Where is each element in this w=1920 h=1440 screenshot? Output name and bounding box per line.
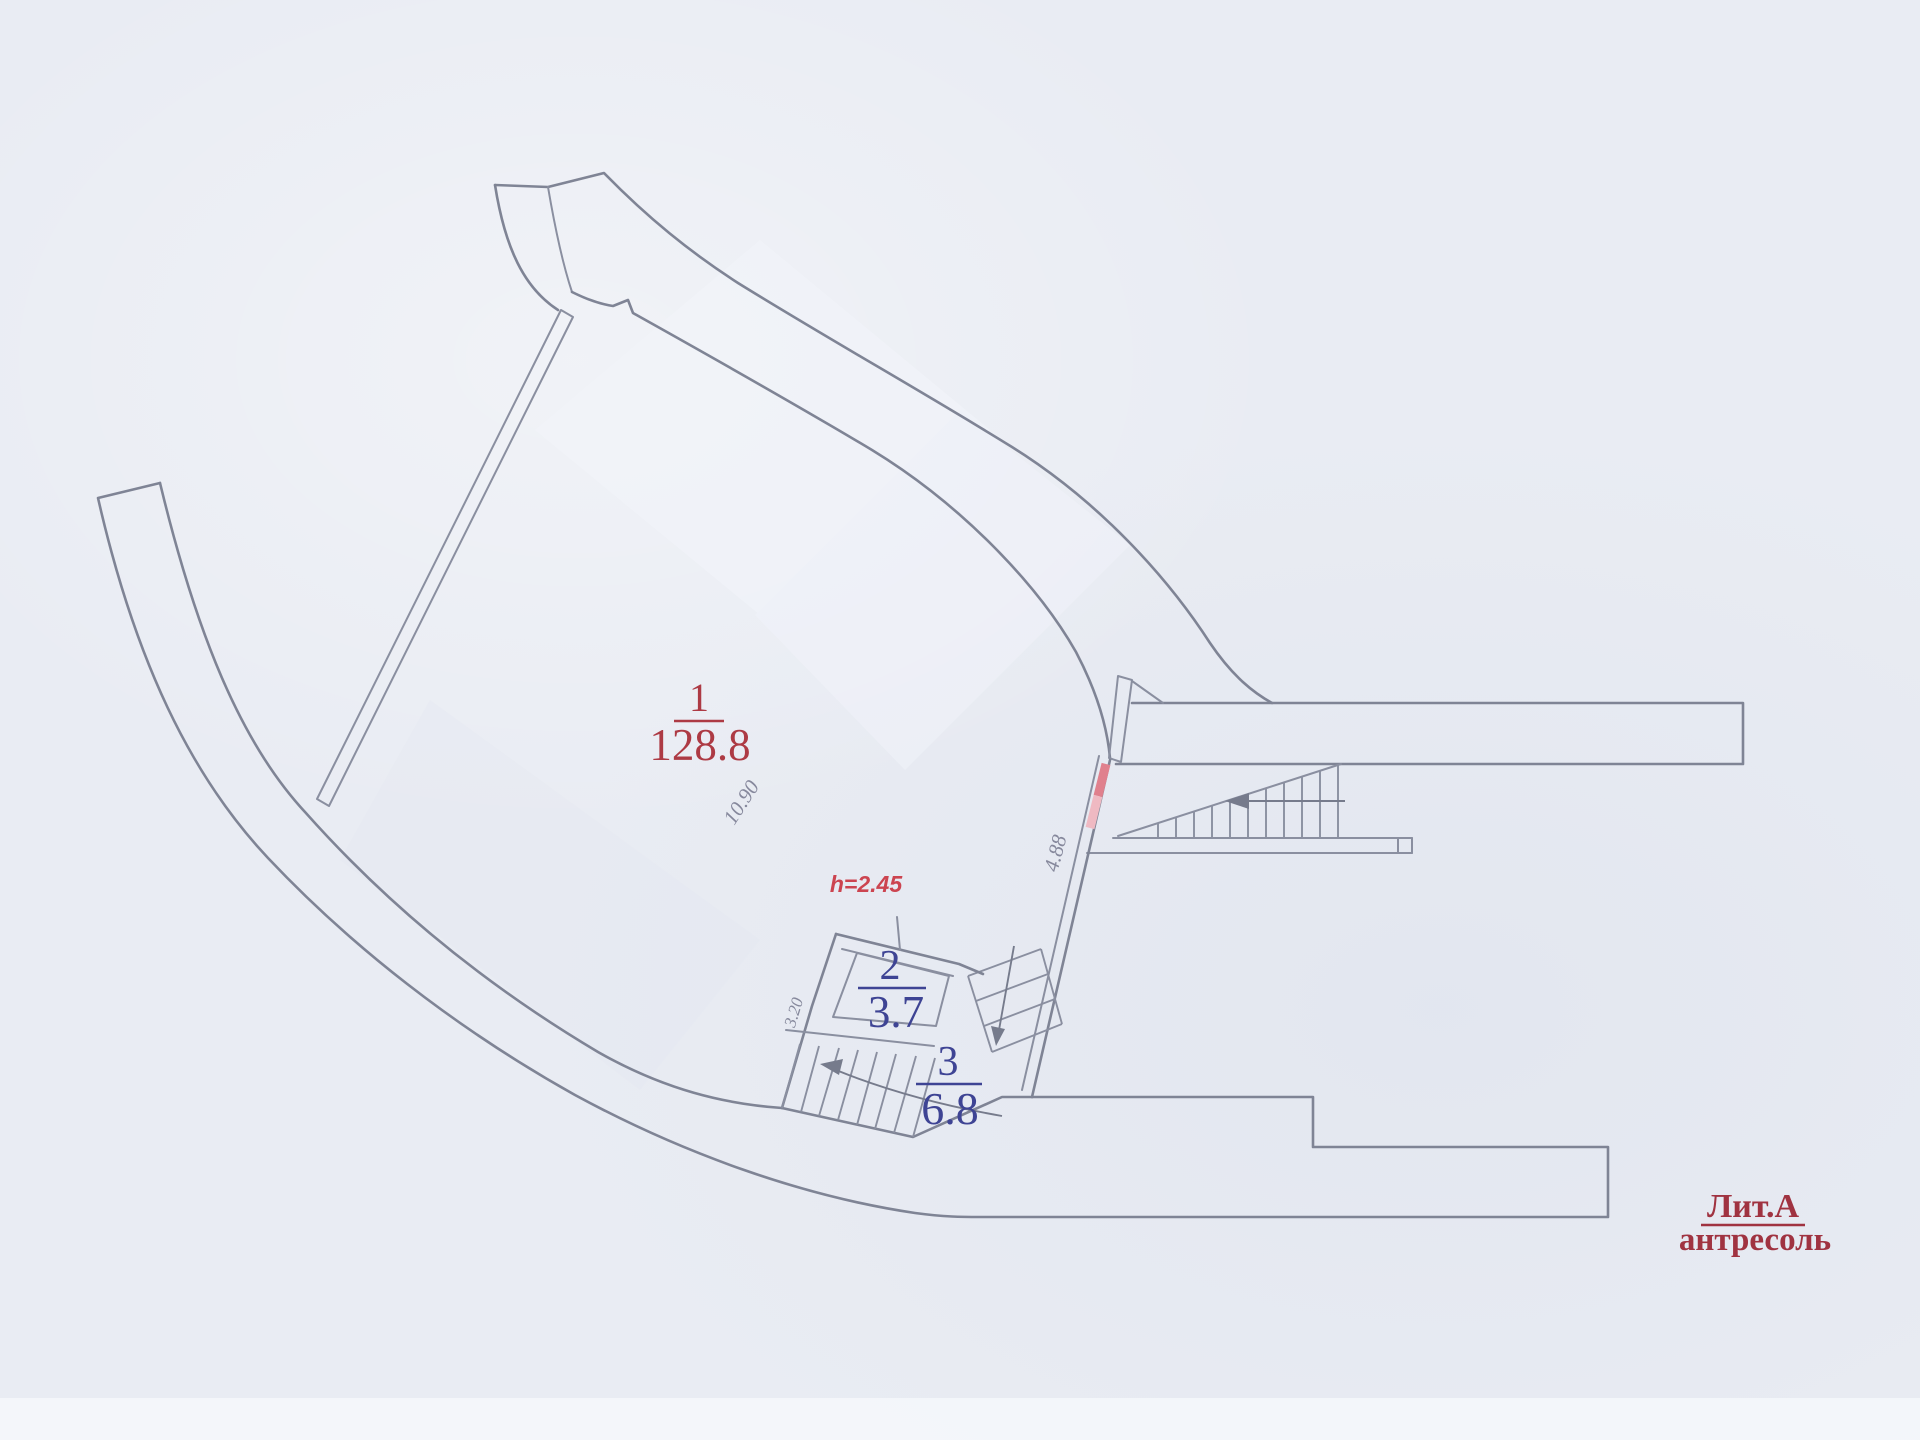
flight-arrowhead bbox=[991, 1026, 1005, 1046]
wall-4-88-inner bbox=[1022, 756, 1099, 1090]
stairs-upper bbox=[1087, 764, 1412, 853]
dimension-3-20: 3.20 bbox=[780, 995, 807, 1030]
room-1-area: 128.8 bbox=[649, 720, 750, 770]
litera-label: Лит.А bbox=[1707, 1188, 1800, 1225]
wall-stub-link bbox=[1132, 681, 1163, 703]
door-opening-light bbox=[1090, 796, 1098, 828]
stairs-upper-arrowhead bbox=[1225, 793, 1249, 809]
height-note: h=2.45 bbox=[830, 871, 903, 897]
corridor-top-right bbox=[1109, 676, 1743, 764]
room-2-number: 2 bbox=[880, 943, 901, 989]
dimension-4-88: 4.88 bbox=[1039, 832, 1072, 874]
wall-stub-cap bbox=[1109, 676, 1132, 762]
flight-treads bbox=[968, 949, 1062, 1052]
room-2-area: 3.7 bbox=[868, 987, 924, 1037]
dimension-10-90: 10.90 bbox=[718, 775, 764, 828]
door-opening-strong bbox=[1098, 764, 1106, 796]
block-bottom-edge bbox=[782, 1097, 1032, 1137]
labels: 1 128.8 2 3.7 3 6.8 h=2.45 10.90 4.88 3.… bbox=[649, 675, 1831, 1258]
room-3-area: 6.8 bbox=[921, 1083, 979, 1134]
stairs-lower-treads bbox=[782, 1044, 935, 1137]
corridor-outline bbox=[1116, 703, 1743, 764]
room-1-number: 1 bbox=[689, 675, 709, 720]
flight-rail-left bbox=[968, 976, 992, 1052]
horn-divider bbox=[548, 187, 572, 292]
litera-sublabel: антресоль bbox=[1679, 1222, 1831, 1258]
horn-left-edge bbox=[495, 185, 558, 310]
scan-bottom-light-strip bbox=[0, 1398, 1920, 1440]
room-3-number: 3 bbox=[938, 1039, 959, 1085]
stairs-middle-flight bbox=[968, 946, 1062, 1052]
wall-4-88 bbox=[1022, 756, 1110, 1097]
scanned-floor-plan-sheet: 1 128.8 2 3.7 3 6.8 h=2.45 10.90 4.88 3.… bbox=[0, 0, 1920, 1440]
stairs-upper-end-cap bbox=[1398, 838, 1412, 853]
floor-plan-canvas: 1 128.8 2 3.7 3 6.8 h=2.45 10.90 4.88 3.… bbox=[0, 0, 1920, 1440]
